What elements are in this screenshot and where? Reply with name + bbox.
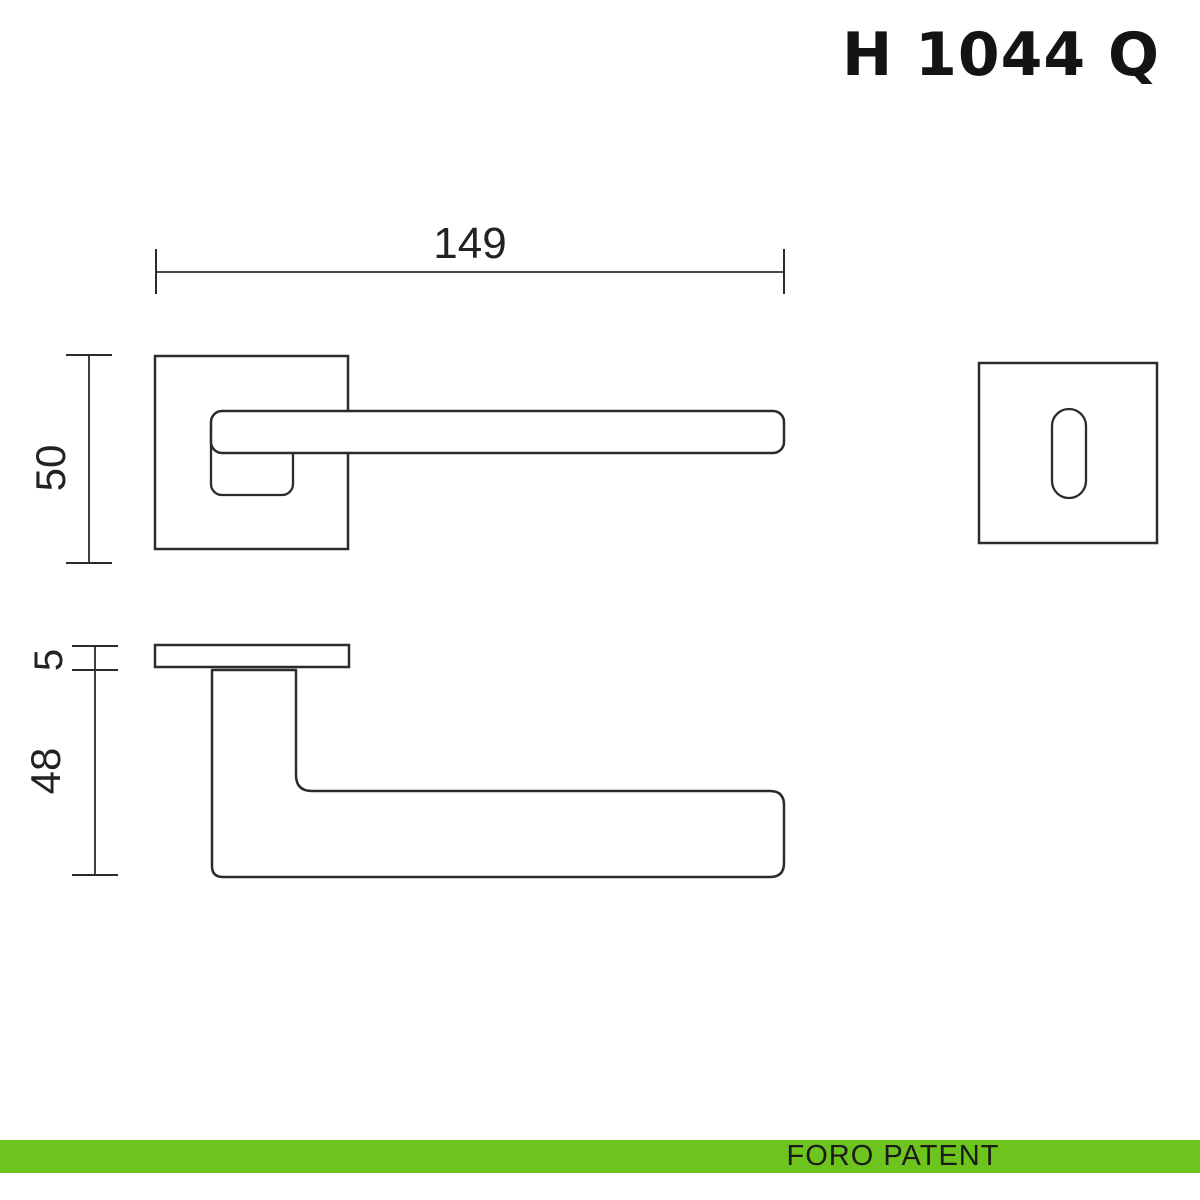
footer-brand-label: FORO PATENT xyxy=(787,1140,1000,1173)
dim-label-50: 50 xyxy=(27,445,74,492)
dim-overall-length: 149 xyxy=(156,219,784,294)
footer-bar: FORO PATENT xyxy=(0,1140,1200,1173)
technical-drawing: 149 50 5 48 xyxy=(0,0,1200,1200)
dim-label-149: 149 xyxy=(433,219,506,268)
dim-label-48: 48 xyxy=(22,748,69,795)
keyhole-oval xyxy=(1052,409,1086,498)
drawing-sheet: H 1044 Q 149 50 xyxy=(0,0,1200,1200)
handle-side-view xyxy=(155,645,784,877)
side-handle-profile xyxy=(212,670,784,877)
handle-front-view xyxy=(155,356,784,549)
key-rose-view xyxy=(979,363,1157,543)
dim-label-5: 5 xyxy=(27,649,71,671)
front-lever-grip xyxy=(211,411,784,453)
side-rose-plate xyxy=(155,645,349,667)
dim-rose-size: 50 xyxy=(27,355,112,563)
dim-thickness-projection: 5 48 xyxy=(22,646,118,875)
